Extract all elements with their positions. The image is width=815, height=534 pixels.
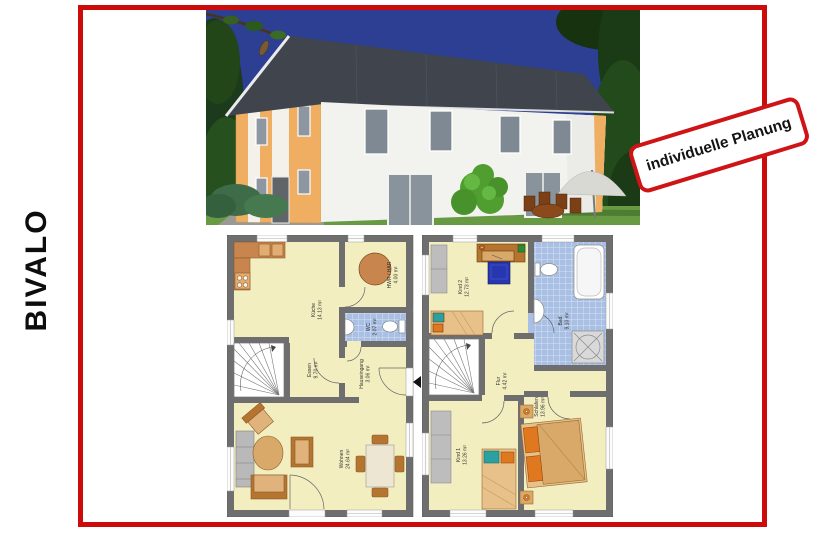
house-exterior-render [206, 10, 640, 225]
house-scene [206, 10, 640, 225]
svg-text:Schlafen: Schlafen [534, 397, 540, 417]
svg-text:14.13 m²: 14.13 m² [318, 300, 324, 320]
svg-text:Wohnen: Wohnen [339, 450, 345, 469]
svg-text:9.10 m²: 9.10 m² [565, 312, 571, 329]
staircase [429, 339, 479, 395]
floor-plan-upper: Kind 2 12.73 m² Bad 9.10 m² Flur 4.42 m²… [422, 235, 613, 517]
ground-plan-drawing: Küche 14.13 m² HWR / HAR 4.00 m² WC 2.07… [227, 235, 421, 517]
svg-text:13.96 m²: 13.96 m² [541, 397, 547, 417]
room-label-essen: Essen 9.70 m² [307, 361, 320, 378]
svg-text:Bad: Bad [558, 316, 564, 325]
svg-text:12.73 m²: 12.73 m² [465, 277, 471, 297]
staircase [234, 343, 284, 397]
svg-text:Kind 1: Kind 1 [456, 448, 462, 462]
svg-text:13.26 m²: 13.26 m² [463, 445, 469, 465]
svg-text:4.42 m²: 4.42 m² [503, 372, 509, 389]
floor-plan-ground: Küche 14.13 m² HWR / HAR 4.00 m² WC 2.07… [227, 235, 421, 517]
svg-text:Flur: Flur [496, 376, 502, 385]
svg-text:9.70 m²: 9.70 m² [314, 361, 320, 378]
svg-text:Kind 2: Kind 2 [458, 280, 464, 294]
svg-text:24.64 m²: 24.64 m² [346, 449, 352, 469]
product-name: BIVALO [20, 208, 54, 331]
flyer-page: BIVALO [0, 0, 815, 534]
room-label-schlafen: Schlafen 13.96 m² [534, 397, 547, 417]
room-label-wohnen: Wohnen 24.64 m² [339, 449, 352, 469]
svg-text:Essen: Essen [307, 363, 313, 377]
svg-text:Hauseingang: Hauseingang [359, 359, 365, 389]
svg-text:Küche: Küche [311, 303, 317, 317]
entrance-arrow [413, 376, 421, 388]
svg-text:3.06 m²: 3.06 m² [366, 365, 372, 382]
svg-text:HWR / HAR: HWR / HAR [387, 261, 393, 288]
svg-text:2.07 m²: 2.07 m² [373, 318, 379, 335]
upper-plan-drawing: Kind 2 12.73 m² Bad 9.10 m² Flur 4.42 m²… [422, 235, 613, 517]
svg-text:WC: WC [366, 322, 372, 331]
svg-text:4.00 m²: 4.00 m² [394, 266, 400, 283]
